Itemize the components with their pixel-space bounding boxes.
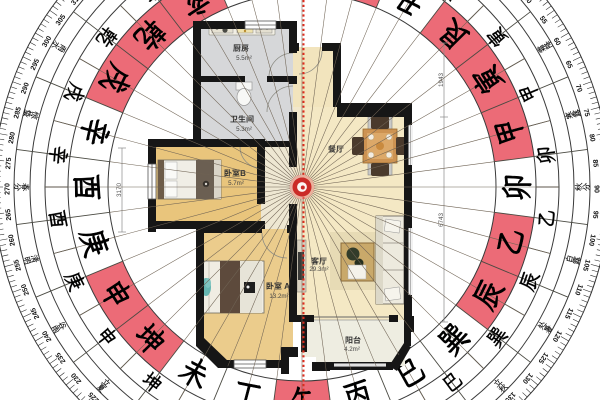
svg-text:3170: 3170 (116, 183, 123, 198)
svg-text:275: 275 (5, 157, 13, 169)
svg-text:95: 95 (591, 210, 599, 218)
svg-text:5.3m²: 5.3m² (236, 126, 252, 133)
svg-text:29.3m²: 29.3m² (309, 266, 328, 273)
svg-text:90: 90 (593, 185, 600, 193)
svg-text:265: 265 (5, 208, 13, 220)
svg-text:80: 80 (587, 133, 595, 142)
svg-text:B: B (240, 169, 246, 178)
svg-text:5.7m²: 5.7m² (228, 180, 244, 187)
svg-text:85: 85 (591, 159, 599, 167)
svg-text:270: 270 (5, 183, 12, 195)
